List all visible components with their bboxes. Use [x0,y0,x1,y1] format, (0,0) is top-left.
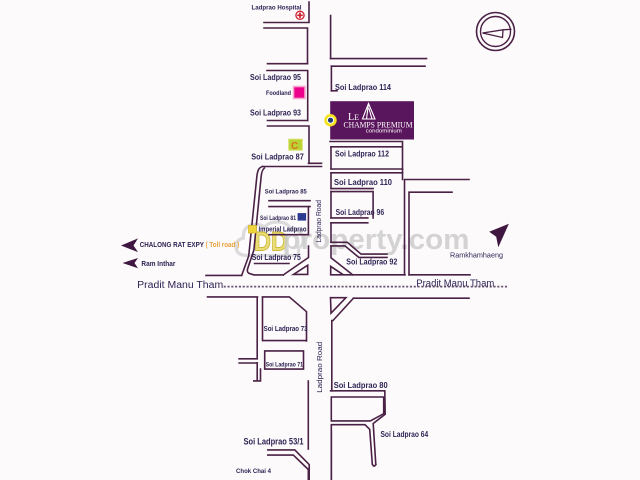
svg-text:Foodland: Foodland [266,90,291,97]
svg-text:Soi Ladprao 95: Soi Ladprao 95 [250,73,301,82]
svg-text:Soi Ladprao 64: Soi Ladprao 64 [381,430,429,439]
svg-text:Soi Ladprao 110: Soi Ladprao 110 [334,178,393,187]
svg-text:Soi Ladprao 81: Soi Ladprao 81 [260,216,297,222]
svg-text:Soi Ladprao 71: Soi Ladprao 71 [266,362,304,369]
svg-text:Soi Ladprao 85: Soi Ladprao 85 [265,189,307,196]
svg-text:Soi Ladprao 87: Soi Ladprao 87 [251,153,304,162]
svg-text:Ramkhamhaeng: Ramkhamhaeng [450,252,503,259]
svg-text:Pradit Manu Tham: Pradit Manu Tham [137,280,223,291]
svg-text:Chok Chai 4: Chok Chai 4 [236,468,271,475]
svg-text:C: C [291,141,298,152]
svg-text:Ladprao Hospital: Ladprao Hospital [252,5,302,12]
svg-text:Soi Ladprao 53/1: Soi Ladprao 53/1 [244,437,304,447]
svg-text:Ladprao Road: Ladprao Road [315,342,324,393]
svg-text:Soi Ladprao 112: Soi Ladprao 112 [335,149,389,158]
svg-text:Pradit Manu Tham: Pradit Manu Tham [416,279,494,290]
svg-text:Soi Ladprao 75: Soi Ladprao 75 [252,253,301,262]
svg-text:condominium: condominium [366,129,402,135]
svg-text:property.com: property.com [283,224,470,256]
svg-text:Ladprao Road: Ladprao Road [316,200,323,243]
svg-text:Soi Ladprao 92: Soi Ladprao 92 [346,257,397,266]
svg-text:Soi Ladprao 96: Soi Ladprao 96 [336,208,385,217]
svg-text:Soi Ladprao 73: Soi Ladprao 73 [264,326,308,333]
svg-text:CHALONG RAT EXPY ( Toll road ): CHALONG RAT EXPY ( Toll road ) [140,242,240,249]
svg-text:Soi Ladprao 93: Soi Ladprao 93 [250,109,301,118]
svg-text:Soi Ladprao 80: Soi Ladprao 80 [334,381,389,390]
svg-text:Soi Ladprao 114: Soi Ladprao 114 [335,83,391,92]
svg-text:Imperial Ladprao: Imperial Ladprao [259,227,307,234]
svg-text:Ram Inthar: Ram Inthar [141,259,175,268]
